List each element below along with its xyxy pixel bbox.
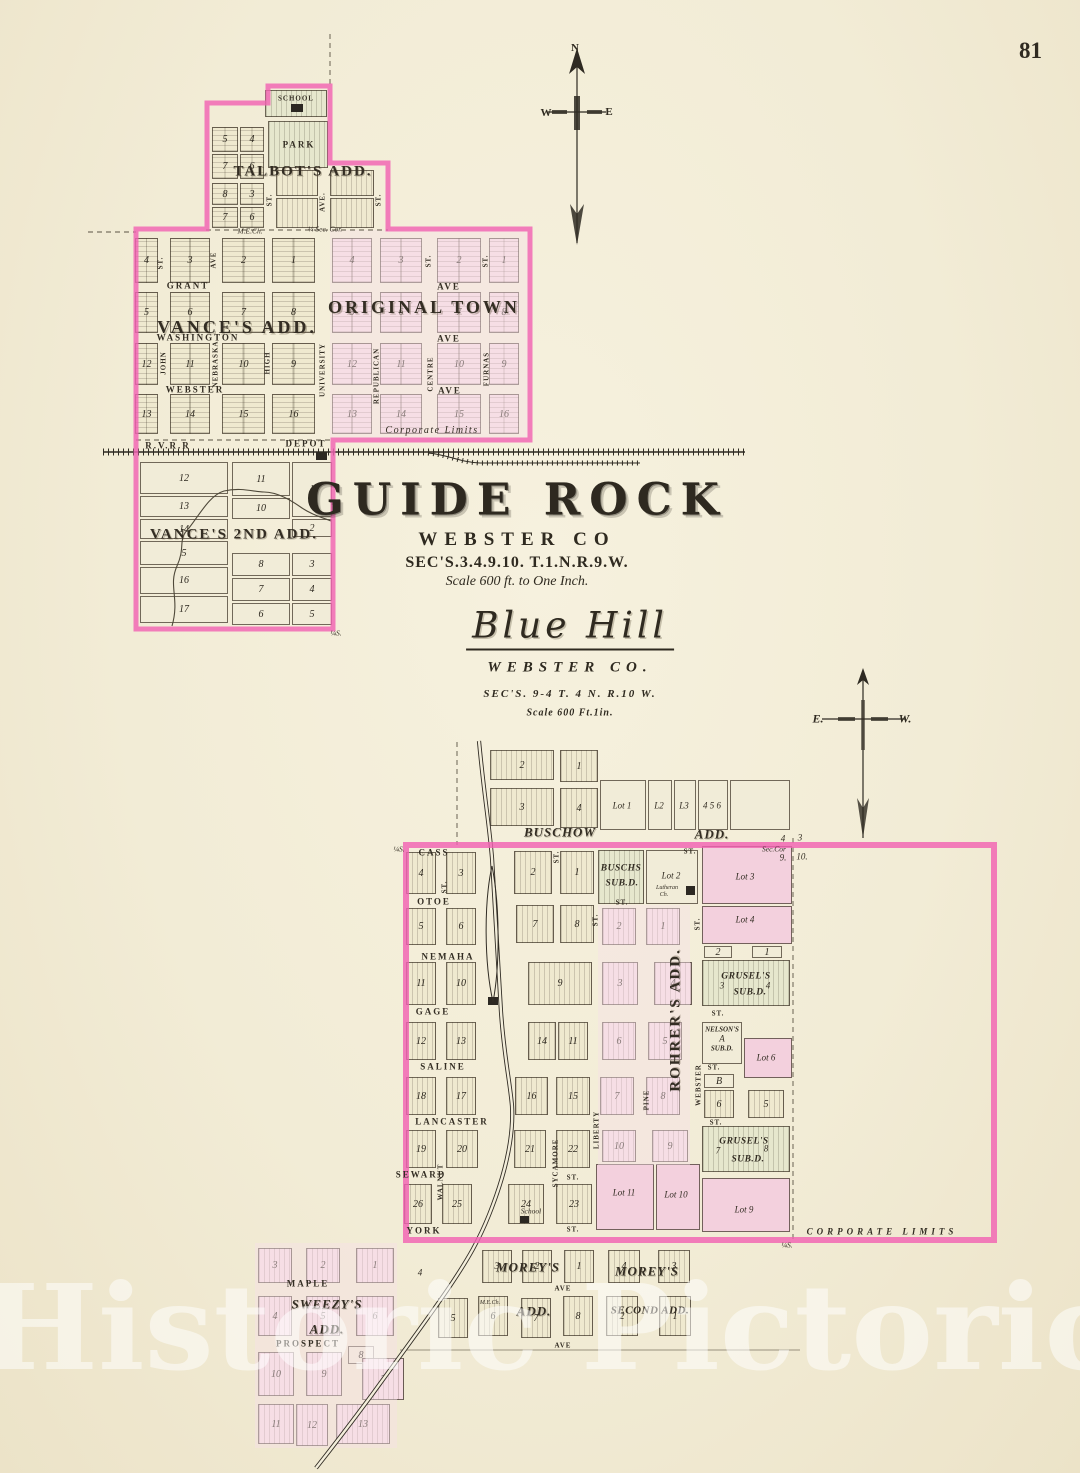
map-label: TALBOT'S ADD. (233, 165, 372, 180)
map-block: 11 (558, 1022, 588, 1060)
map-block (598, 850, 644, 904)
map-label: Lot 6 (757, 1054, 776, 1063)
map-block: 3 (490, 788, 554, 826)
map-block: 1 (752, 946, 782, 958)
map-label: UNIVERSITY (320, 343, 327, 397)
map-block: 13 (332, 394, 372, 434)
map-block: 1 (560, 851, 594, 894)
map-block: 6 (704, 1090, 734, 1118)
map-label: Lot 9 (735, 1206, 754, 1215)
map-block: 8 (489, 292, 519, 333)
blue-hill-title: Blue Hill (466, 606, 674, 651)
map-block: 10 (222, 343, 265, 385)
map-label: SALINE (420, 1063, 466, 1072)
map-block: 6 (446, 908, 476, 945)
map-label: OTOE (417, 898, 451, 907)
map-block: 15 (437, 394, 481, 434)
map-label: CORPORATE LIMITS (807, 1228, 958, 1237)
map-block: 13 (135, 394, 158, 434)
map-label: L3 (679, 802, 689, 811)
map-block: 7 (212, 207, 238, 228)
compass2-w-label: W. (899, 712, 912, 727)
map-block: 11 (170, 343, 210, 385)
map-label: HIGH (265, 351, 272, 374)
map-label: GRUSEL'S (721, 972, 770, 982)
building-footprint (251, 241, 261, 248)
map-block (702, 906, 792, 944)
page-number: 81 (1019, 38, 1042, 64)
map-block (674, 780, 696, 830)
map-linework (0, 0, 1080, 1473)
map-block: 2 (490, 750, 554, 780)
map-label: NELSON'S (705, 1027, 739, 1034)
map-label: AVE (437, 335, 461, 344)
map-label: 10. (796, 853, 807, 862)
building-footprint (488, 997, 498, 1005)
map-block: 4 (654, 962, 692, 1005)
map-label: R.V.R.R (145, 442, 191, 451)
map-block: 8 (272, 292, 315, 333)
compass-north-icon (548, 48, 606, 245)
map-block: 4 (332, 238, 372, 283)
map-label: ST. (158, 257, 165, 270)
map-label: ST. (567, 1175, 580, 1182)
map-block: 8 (560, 905, 594, 943)
map-block: 2 (602, 908, 636, 945)
map-label: Lot 3 (736, 873, 755, 882)
map-block (276, 198, 318, 228)
map-block: 6 (602, 1022, 636, 1060)
map-label: GAGE (416, 1008, 451, 1017)
map-block: 6 (380, 292, 422, 333)
map-block (702, 1126, 790, 1172)
map-label: 3 (720, 982, 725, 991)
map-label: ST. (376, 194, 383, 207)
map-label: SCHOOL (278, 96, 314, 103)
map-label: ADD. (695, 828, 730, 841)
blue-hill-map: 2134432156782121111093412131411651817161… (0, 0, 1080, 1473)
compass-w-label: W (541, 107, 552, 119)
building-footprint (686, 886, 695, 895)
map-block: 12 (140, 462, 228, 494)
map-label: BUSCHOW (524, 826, 596, 839)
map-block (330, 170, 374, 196)
map-block: 1 (560, 750, 598, 782)
map-block: 5 (648, 1022, 682, 1060)
map-block: 12 (296, 1404, 328, 1446)
map-label: LIBERTY (594, 1111, 601, 1149)
map-block: 10 (602, 1130, 636, 1162)
map-block (702, 1022, 742, 1064)
map-block: 3 (292, 553, 332, 576)
map-block: 2 (222, 238, 265, 283)
map-block: 12 (135, 343, 158, 385)
compass2-e-label: E. (812, 712, 823, 727)
map-label: DEPOT (285, 440, 326, 449)
map-label: ST. (426, 255, 433, 268)
map-block: 15 (556, 1077, 590, 1115)
map-block: 13 (336, 1404, 390, 1444)
map-label: WEBSTER (166, 386, 225, 395)
map-block: 2 (437, 238, 481, 283)
map-block: 9 (272, 343, 315, 385)
compass-e-label: E (605, 106, 612, 118)
map-label: CENTRE (428, 356, 435, 391)
map-label: ORIGINAL TOWN (328, 298, 520, 316)
map-label: AVE (438, 387, 462, 396)
blue-hill-county: WEBSTER CO. (487, 660, 652, 677)
map-block: 24 (508, 1184, 544, 1224)
map-label: WASHINGTON (157, 334, 240, 343)
map-block: 18 (406, 1077, 436, 1115)
guide-rock-sections: SEC'S.3.4.9.10. T.1.N.R.9.W. (405, 554, 628, 572)
map-block: 6 (170, 292, 210, 333)
map-label: School (521, 1207, 541, 1215)
map-block (730, 780, 790, 830)
map-block: 11 (380, 343, 422, 385)
map-label: AVE. (320, 192, 327, 212)
map-block: B (704, 1074, 734, 1088)
map-block (648, 780, 672, 830)
map-block (702, 1178, 790, 1232)
map-block: 7 (516, 905, 554, 943)
map-block: 10 (232, 498, 290, 519)
map-label: ST. (684, 849, 697, 856)
map-block: 19 (406, 1130, 436, 1168)
map-block: 17 (446, 1077, 476, 1115)
map-block: 5 (212, 127, 238, 152)
guide-rock-corporate-limits (136, 86, 530, 629)
map-label: Sec.Cor (762, 845, 786, 853)
map-block: 9 (652, 1130, 688, 1162)
map-block: 5 (140, 541, 228, 565)
map-label: FURNAS (484, 352, 491, 386)
map-label: Lot 10 (664, 1191, 687, 1200)
map-block: 2 (704, 946, 732, 958)
map-block: 11 (406, 962, 436, 1005)
map-block: 3 (170, 238, 210, 283)
map-block (646, 850, 698, 904)
map-label: ¼ Sec. Cor. (308, 225, 342, 233)
map-block: 14 (170, 394, 210, 434)
map-label: Lutheran (656, 885, 678, 891)
map-block: 14 (140, 519, 228, 539)
map-block: 8 (212, 183, 238, 205)
map-block (600, 780, 646, 830)
map-block: 9 (528, 962, 592, 1005)
blue-hill-sections: SEC'S. 9-4 T. 4 N. R.10 W. (483, 688, 656, 700)
map-label: A (719, 1035, 725, 1044)
map-block: 7 (212, 154, 238, 179)
map-block (656, 1164, 700, 1230)
map-label: 4 (766, 982, 771, 991)
map-block: 15 (222, 394, 265, 434)
map-block: 11 (258, 1404, 294, 1444)
map-label: Lot 4 (736, 916, 755, 925)
guide-rock-map: 5476837643215678121110913141516432156781… (0, 0, 1080, 1473)
map-block: 3 (240, 183, 264, 205)
map-block: 25 (442, 1184, 472, 1224)
map-block: 21 (514, 1130, 546, 1168)
map-block: 13 (446, 1022, 476, 1060)
map-block: 5 (406, 908, 436, 945)
map-block: 16 (272, 394, 315, 434)
map-block: 6 (240, 154, 264, 179)
map-block: 7 (222, 292, 265, 333)
map-label: ¼S. (393, 845, 404, 853)
map-block: 5 (292, 603, 332, 625)
map-block: 16 (140, 567, 228, 594)
map-block: 6 (232, 603, 290, 625)
map-block: 16 (489, 394, 519, 434)
building-footprint (316, 452, 327, 460)
map-label: VANCE'S ADD. (157, 318, 317, 336)
blue-hill-scale: Scale 600 Ft.1in. (526, 708, 613, 719)
map-block: 17 (140, 596, 228, 623)
map-block: 12 (332, 343, 372, 385)
guide-rock-scale: Scale 600 ft. to One Inch. (446, 574, 589, 590)
map-label: M.E.Ch. (237, 227, 262, 235)
map-label: WALNUT (438, 1164, 445, 1201)
map-label: NEMAHA (422, 953, 475, 962)
map-block: 5 (332, 292, 372, 333)
guide-rock-labels: SCHOOLPARKTALBOT'S ADD.M.E.Ch.¼ Sec. Cor… (0, 0, 1080, 1473)
map-block: 7 (600, 1077, 634, 1115)
map-block: 1 (292, 462, 332, 517)
map-label: REPUBLICAN (374, 348, 381, 404)
map-label: ST. (554, 851, 561, 864)
watermark: Historic Pictoric ® (0, 1258, 1080, 1397)
map-block (330, 198, 374, 228)
map-label: 4 5 6 (703, 802, 721, 811)
map-block: 5 (748, 1090, 784, 1118)
map-block: 8 (646, 1077, 680, 1115)
map-block: 4 (560, 788, 598, 828)
map-block: 4 (240, 127, 264, 152)
map-label: CASS (418, 849, 449, 858)
map-label: SYCAMORE (553, 1139, 560, 1188)
map-block: 5 (135, 292, 158, 333)
map-block: 23 (556, 1184, 592, 1224)
map-label: Lot 2 (662, 872, 681, 881)
map-label: LANCASTER (415, 1118, 489, 1127)
map-block: 10 (437, 343, 481, 385)
map-block: 2 (292, 519, 332, 537)
map-label: ST. (267, 194, 274, 207)
map-label: SUB.D. (733, 988, 766, 998)
map-label: VANCE'S 2ND ADD. (150, 528, 318, 543)
map-block: 4 (292, 578, 332, 601)
map-block: 22 (556, 1130, 590, 1168)
map-label: PARK (283, 141, 316, 150)
map-block: 9 (489, 343, 519, 385)
map-block: 14 (528, 1022, 556, 1060)
map-block: 3 (602, 962, 638, 1005)
building-footprint (291, 104, 303, 112)
map-label: GRUSEL'S (719, 1137, 768, 1147)
map-label: ST. (712, 1011, 725, 1018)
map-label: L2 (654, 802, 664, 811)
map-label: AVE (211, 252, 218, 269)
guide-rock-title: GUIDE ROCK (306, 475, 728, 526)
map-block (698, 780, 728, 830)
map-label: ST. (695, 918, 702, 931)
map-label: PINE (644, 1090, 651, 1111)
map-label: YORK (407, 1227, 442, 1236)
map-block: 3 (380, 238, 422, 283)
map-label: 7 (716, 1147, 721, 1156)
compass-n-label: N (571, 42, 579, 54)
map-label: ¼S. (781, 1241, 792, 1249)
map-label: ST. (442, 881, 449, 894)
map-block: 14 (380, 394, 422, 434)
map-label: GRANT (167, 282, 210, 291)
map-block: 16 (515, 1077, 548, 1115)
map-block: 8 (232, 553, 290, 576)
map-block: 26 (404, 1184, 432, 1224)
map-label: 8 (764, 1145, 769, 1154)
map-block: 7 (232, 578, 290, 601)
map-block (268, 121, 328, 168)
map-block: 1 (489, 238, 519, 283)
map-block (702, 960, 790, 1006)
building-footprint (520, 1216, 529, 1223)
map-label: SUB.D. (731, 1155, 764, 1165)
blue-hill-corporate-limits (406, 845, 994, 1240)
map-label: 3 (798, 834, 803, 843)
map-label: ST. (710, 1120, 723, 1127)
map-block (702, 846, 792, 904)
map-block: 7 (437, 292, 481, 333)
map-block: 6 (240, 207, 264, 228)
compass-east-west-icon (822, 668, 906, 838)
map-label: Lot 1 (613, 802, 632, 811)
map-label: ST. (708, 1065, 721, 1072)
map-label: SUB.D. (711, 1046, 733, 1053)
map-block: 4 (135, 238, 158, 283)
map-block: 1 (272, 238, 315, 283)
map-label: ST. (593, 914, 600, 927)
map-block: 12 (406, 1022, 436, 1060)
map-block: 3 (446, 852, 476, 894)
map-block (265, 90, 327, 117)
map-label: ROHRER'S ADD. (669, 948, 684, 1092)
map-label: ST. (483, 255, 490, 268)
map-block (596, 1164, 654, 1230)
map-block: 4 (406, 852, 436, 894)
map-label: Corporate Limits (385, 426, 478, 436)
map-block: 1 (646, 908, 680, 945)
map-block: 10 (446, 962, 476, 1005)
map-label: Lot 11 (613, 1189, 636, 1198)
map-label: BUSCHS (601, 864, 642, 874)
map-label: AVE (437, 283, 461, 292)
blue-hill-labels: BUSCHOWADD.Lot 1L2L34 5 6CASSST.Sec.Cor4… (0, 0, 1080, 1473)
map-label: SEWARD (396, 1171, 447, 1180)
map-label: ¼S. (330, 629, 341, 637)
guide-rock-county: WEBSTER CO (418, 529, 615, 551)
map-label: SUB.D. (605, 879, 638, 889)
map-label: JOHN (161, 351, 168, 374)
map-label: NEBRASKA (213, 341, 220, 388)
map-label: WEBSTER (696, 1064, 703, 1106)
map-label: 4 (781, 835, 786, 844)
map-block: 2 (514, 851, 552, 894)
map-label: ST. (616, 900, 629, 907)
map-label: 9. (780, 854, 787, 863)
map-block: 11 (232, 462, 290, 496)
map-label: ST. (567, 1227, 580, 1234)
map-block: 20 (446, 1130, 478, 1168)
map-label: Ch. (660, 892, 669, 898)
map-block: 13 (140, 496, 228, 517)
atlas-page: 81 5476837643215678121110913141516432156… (0, 0, 1080, 1473)
map-block (276, 170, 318, 196)
map-block (744, 1038, 792, 1078)
